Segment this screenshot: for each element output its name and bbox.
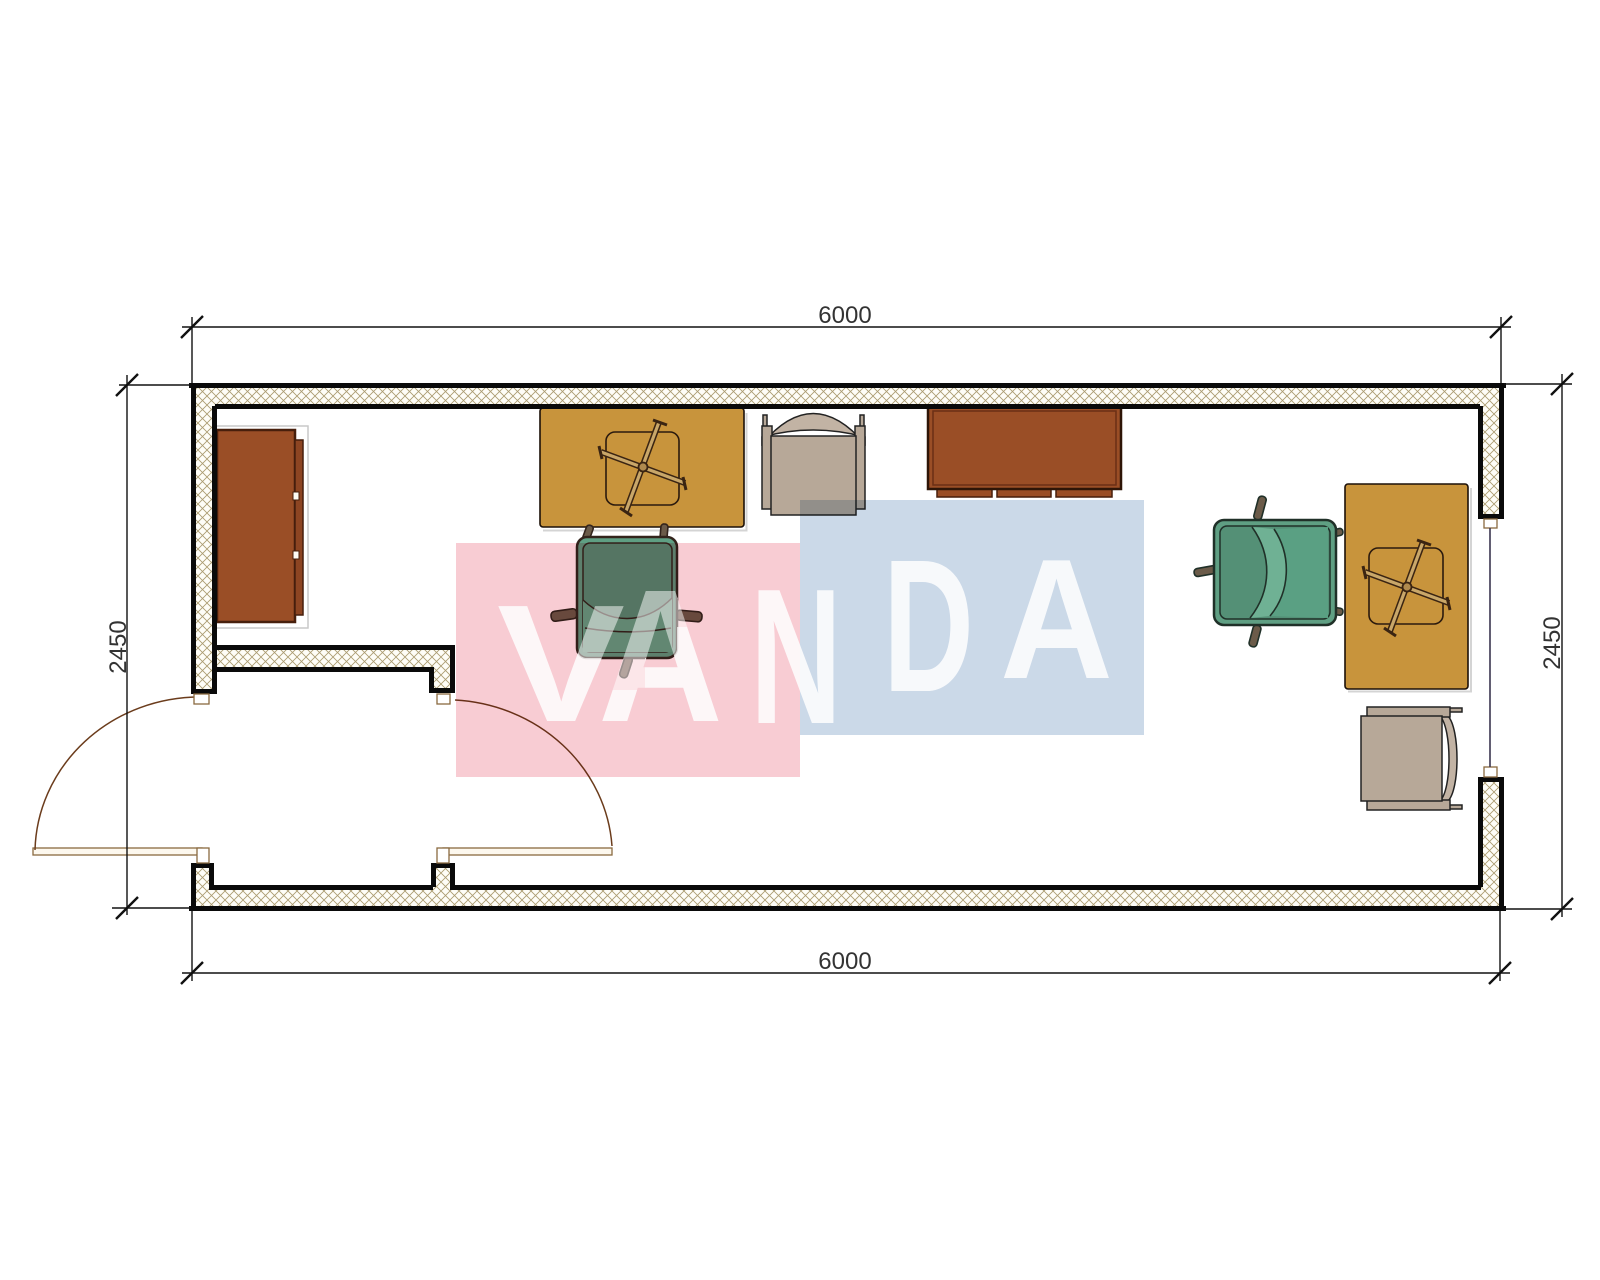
svg-text:2450: 2450 — [105, 620, 132, 673]
svg-text:D: D — [883, 521, 974, 732]
svg-text:6000: 6000 — [818, 948, 871, 975]
svg-text:6000: 6000 — [818, 302, 871, 329]
svg-text:N: N — [750, 548, 842, 764]
svg-text:A: A — [1000, 524, 1113, 715]
svg-text:2450: 2450 — [1539, 616, 1566, 669]
